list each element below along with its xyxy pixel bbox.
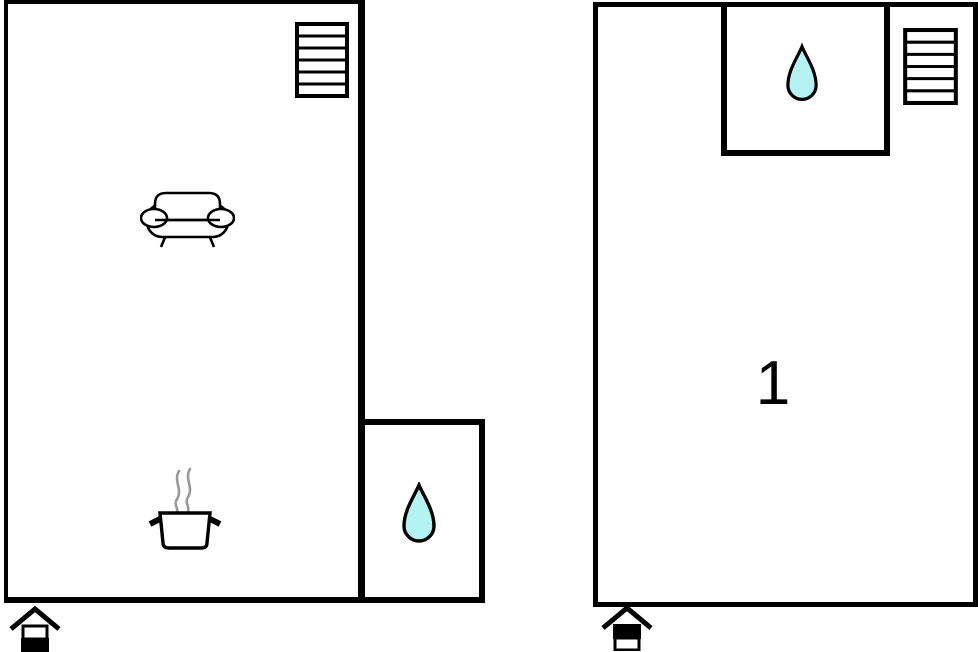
water-drop-icon xyxy=(786,42,818,104)
stairs-icon xyxy=(903,28,958,105)
cooking-pot-icon xyxy=(146,465,224,553)
water-drop-icon xyxy=(402,482,436,544)
floor-indicator-house-icon xyxy=(9,606,61,652)
floorplan-canvas: 1 xyxy=(0,0,978,652)
sofa-icon xyxy=(140,190,235,248)
steam-lines xyxy=(176,471,179,513)
room-number-label: 1 xyxy=(742,350,804,418)
stairs-icon xyxy=(295,22,349,98)
floor-indicator-house-icon xyxy=(601,605,653,651)
